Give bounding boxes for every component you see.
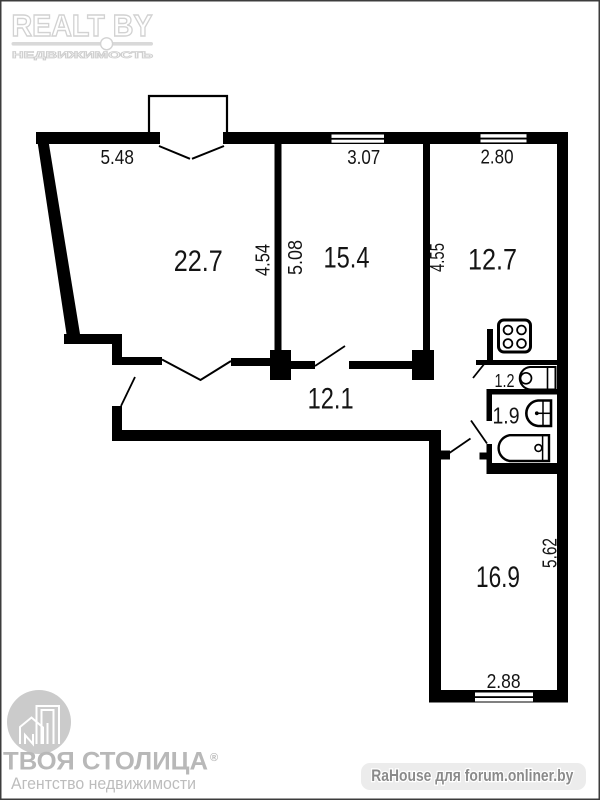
svg-text:REALT BY: REALT BY [12, 8, 153, 43]
svg-text:®: ® [210, 752, 218, 764]
svg-text:ТВОЯ СТОЛИЦА: ТВОЯ СТОЛИЦА [3, 748, 208, 776]
svg-text:16.9: 16.9 [476, 561, 520, 594]
svg-text:4.54: 4.54 [252, 244, 275, 276]
svg-text:2.88: 2.88 [487, 670, 521, 693]
svg-text:1.2: 1.2 [495, 370, 515, 391]
svg-text:3.07: 3.07 [347, 146, 380, 169]
svg-text:Агентство недвижимости: Агентство недвижимости [11, 775, 196, 793]
svg-text:1.9: 1.9 [493, 403, 520, 429]
svg-text:15.4: 15.4 [324, 242, 370, 275]
svg-text:5.08: 5.08 [284, 240, 307, 275]
svg-text:22.7: 22.7 [174, 245, 223, 278]
svg-text:4.55: 4.55 [426, 243, 449, 272]
svg-text:2.80: 2.80 [481, 146, 514, 169]
svg-text:12.1: 12.1 [308, 383, 354, 416]
svg-text:RaHouse для forum.onliner.by: RaHouse для forum.onliner.by [371, 766, 573, 785]
svg-text:5.62: 5.62 [539, 538, 562, 568]
svg-text:НЕДВИЖИМОСТЬ: НЕДВИЖИМОСТЬ [12, 50, 154, 60]
svg-text:12.7: 12.7 [468, 244, 517, 277]
svg-text:5.48: 5.48 [100, 146, 134, 169]
